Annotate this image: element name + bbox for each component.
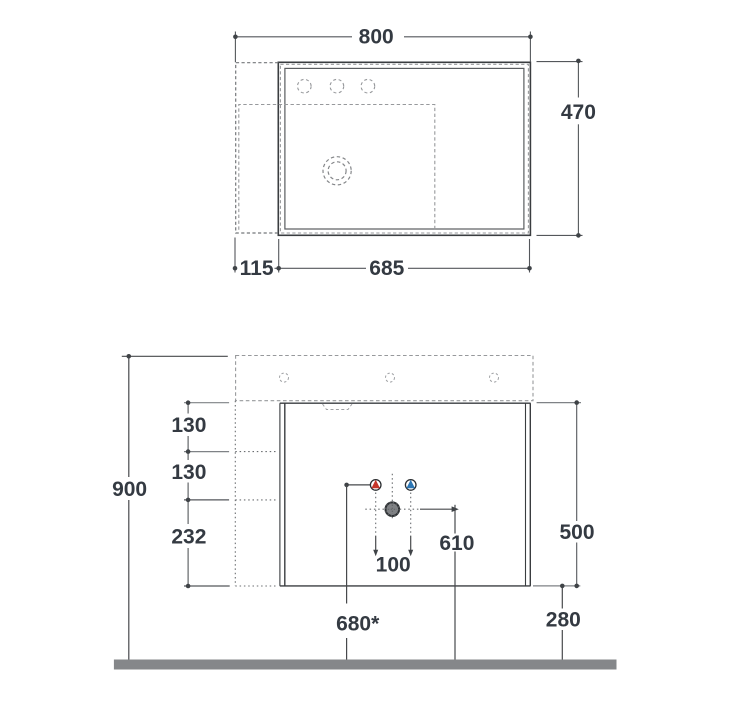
svg-text:680*: 680* <box>336 612 380 635</box>
svg-text:610: 610 <box>439 532 474 555</box>
svg-text:115: 115 <box>240 257 274 280</box>
svg-text:685: 685 <box>369 257 404 280</box>
svg-text:280: 280 <box>546 609 581 632</box>
svg-text:232: 232 <box>171 525 206 548</box>
svg-text:900: 900 <box>112 478 147 501</box>
svg-text:130: 130 <box>171 461 206 484</box>
svg-text:130: 130 <box>171 414 206 437</box>
svg-text:100: 100 <box>376 553 411 576</box>
svg-text:470: 470 <box>561 101 596 124</box>
svg-text:800: 800 <box>359 26 394 49</box>
svg-text:500: 500 <box>559 521 594 544</box>
